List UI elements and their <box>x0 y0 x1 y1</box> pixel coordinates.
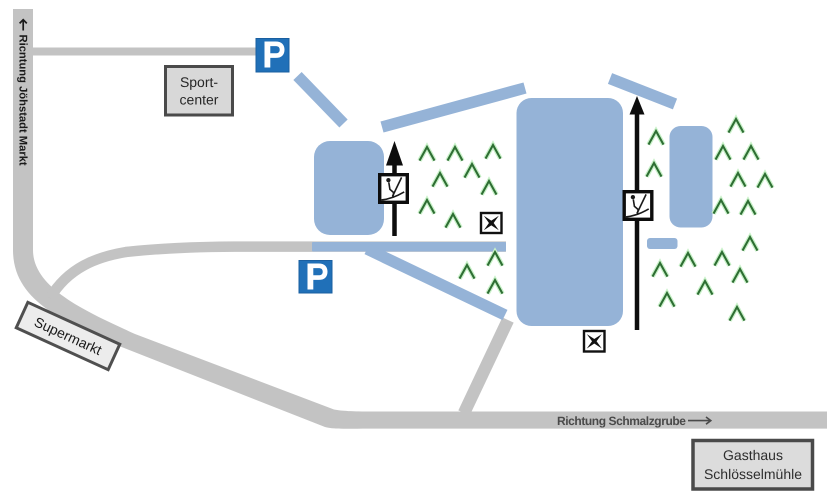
svg-text:Richtung Schmalzgrube: Richtung Schmalzgrube <box>557 414 686 428</box>
svg-text:Schlösselmühle: Schlösselmühle <box>704 466 802 482</box>
svg-text:Sport-: Sport- <box>180 74 218 90</box>
svg-text:Gasthaus: Gasthaus <box>723 447 783 463</box>
svg-text:center: center <box>180 92 219 108</box>
svg-text:Ricntung Jöhstadt Markt: Ricntung Jöhstadt Markt <box>17 35 29 166</box>
